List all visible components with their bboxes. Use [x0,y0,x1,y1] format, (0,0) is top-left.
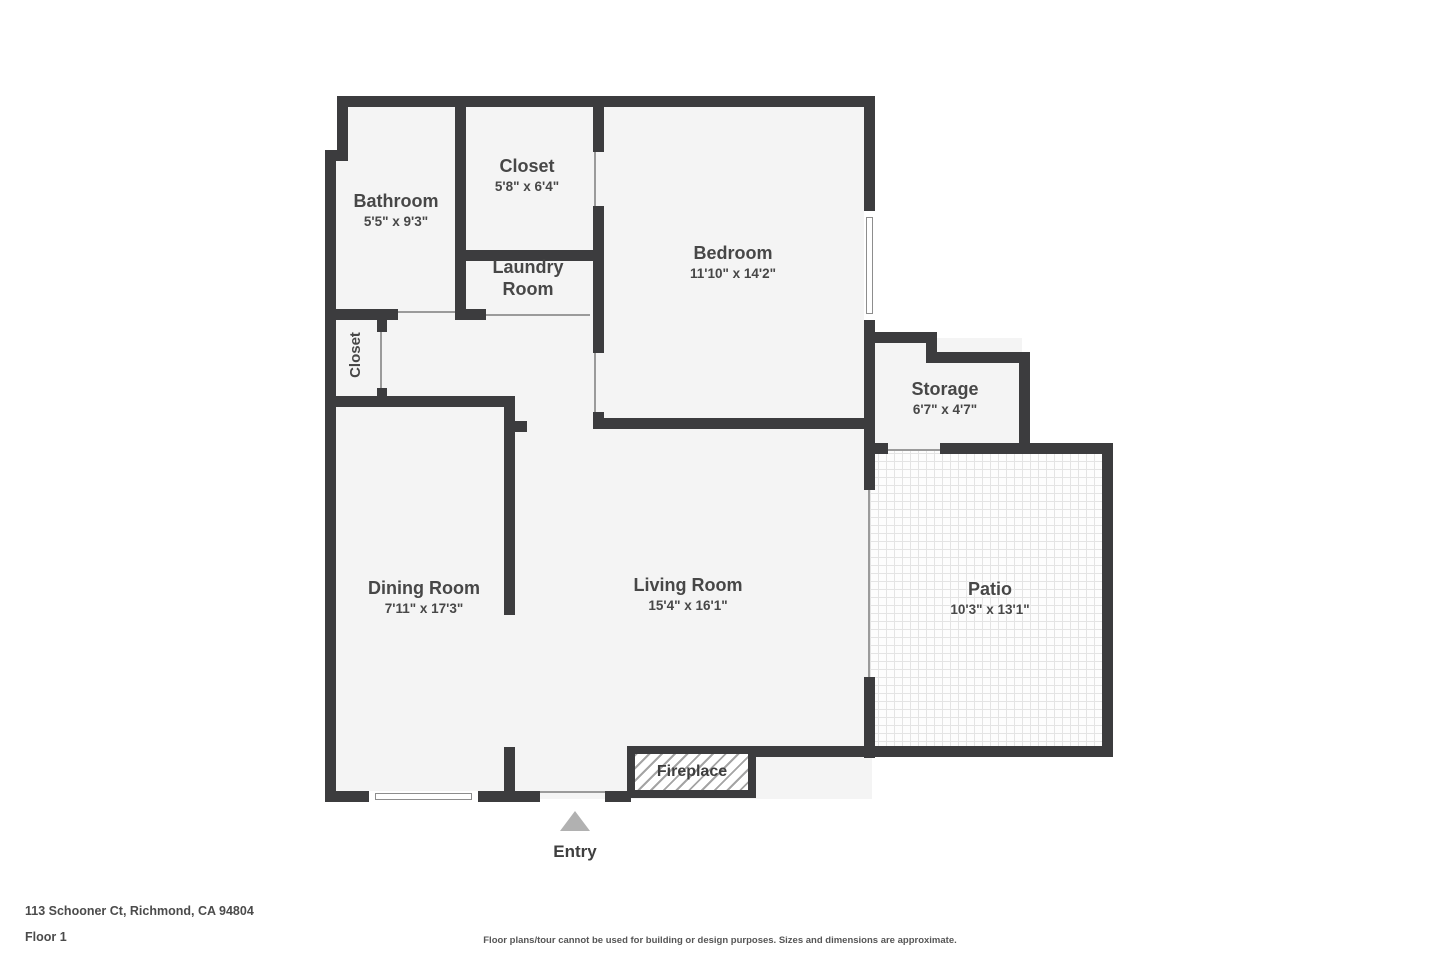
room-name: Bathroom [354,191,439,213]
wall-hall-closet-stub-bottom [377,388,387,404]
bedroom-closet-door-opening [594,152,596,206]
floor-plan-canvas: Fireplace Bathroom 5'5" x 9'3" Closet 5'… [0,0,1440,960]
bedroom-door-opening [594,353,596,412]
room-dims: 5'5" x 9'3" [354,214,439,229]
room-name: Closet [347,332,365,378]
wall-bathroom-closet-divider [455,96,466,261]
bedroom-window-frame [866,217,873,314]
wall-right-2 [864,320,875,490]
wall-patio-top-a [864,443,888,454]
wall-patio-top-b [940,443,1113,454]
patio-slider-opening [868,490,870,677]
entry-door-opening [540,791,606,793]
wall-bottom-a [325,791,369,802]
storage-door-opening [888,449,940,451]
wall-laundry-left [455,250,466,320]
wall-dining-bottom-stub [504,747,515,802]
room-name: Storage [911,379,978,401]
room-label-living: Living Room 15'4" x 16'1" [634,575,743,613]
hall-closet-door-opening [380,332,382,388]
property-address: 113 Schooner Ct, Richmond, CA 94804 [25,904,254,918]
wall-dining-top [325,396,515,407]
wall-bedroom-left-2 [593,206,604,353]
wall-bottom-right [755,746,1113,757]
wall-patio-right [1102,443,1113,757]
room-dims: 5'8" x 6'4" [495,179,559,194]
bathroom-door-opening [398,311,455,313]
room-label-hall-closet: Closet [347,332,365,378]
room-label-bathroom: Bathroom 5'5" x 9'3" [354,191,439,229]
wall-bathroom-bottom-a [325,309,398,320]
wall-dining-stub [515,421,527,432]
room-label-bedroom: Bedroom 11'10" x 14'2" [690,243,776,281]
room-dims: 7'11" x 17'3" [368,601,480,616]
room-name: Bedroom [690,243,776,265]
room-dims: 11'10" x 14'2" [690,266,776,281]
room-dims: 6'7" x 4'7" [911,402,978,417]
room-name: Laundry Room [472,257,584,301]
bedroom-window [864,211,875,320]
room-label-storage: Storage 6'7" x 4'7" [911,379,978,417]
wall-storage-right [1019,352,1030,454]
wall-right-1 [864,96,875,211]
dining-window [369,791,478,802]
entry-arrow-icon [560,811,590,831]
dining-window-frame [375,793,472,800]
room-label-patio: Patio 10'3" x 13'1" [950,579,1029,617]
fireplace-label: Fireplace [657,763,727,781]
wall-left-main [325,150,336,802]
laundry-door-opening [486,314,590,316]
room-label-laundry: Laundry Room [472,257,584,301]
wall-bedroom-left-1 [593,96,604,152]
room-label-bedroom-closet: Closet 5'8" x 6'4" [495,156,559,194]
wall-hall-closet-stub-top [377,320,387,332]
room-name: Living Room [634,575,743,597]
room-label-dining: Dining Room 7'11" x 17'3" [368,578,480,616]
wall-dining-right [504,396,515,615]
disclaimer-text: Floor plans/tour cannot be used for buil… [0,935,1440,946]
room-name: Closet [495,156,559,178]
wall-top [337,96,875,107]
entry-label: Entry [553,842,596,862]
room-dims: 15'4" x 16'1" [634,598,743,613]
wall-bedroom-bottom [593,418,875,429]
room-name: Patio [950,579,1029,601]
wall-storage-top-2 [926,352,1030,363]
room-name: Dining Room [368,578,480,600]
room-dims: 10'3" x 13'1" [950,602,1029,617]
wall-left-upper [337,96,348,153]
